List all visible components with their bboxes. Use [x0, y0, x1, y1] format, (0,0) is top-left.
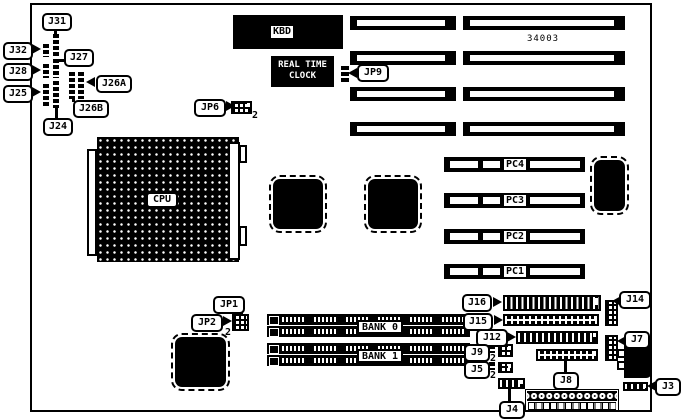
- label-j27: J27: [64, 49, 94, 67]
- j5-pin2-marker: 2: [490, 371, 496, 381]
- kbd-chip-label: KBD: [271, 26, 293, 38]
- jumper-strip-j25: [43, 84, 49, 106]
- connector-j16: [503, 295, 601, 311]
- qfp-chip-2: [368, 179, 418, 229]
- callout-tail-jp9: [348, 68, 357, 78]
- jp2-pin2-marker: 2: [225, 328, 231, 338]
- pc1-slot: PC1: [444, 264, 585, 279]
- pc2-slot-strip1: [450, 233, 478, 240]
- pc4-slot-strip1: [450, 161, 478, 168]
- connector-j8: [536, 349, 598, 361]
- label-j32: J32: [3, 42, 33, 60]
- pc4-slot-strip2: [483, 161, 500, 168]
- bank0-label: BANK 0: [357, 320, 403, 334]
- jumper-strip-j26b: [69, 72, 75, 99]
- jumper-strip-j28: [43, 64, 49, 78]
- jumper-strip-j32: [43, 44, 49, 57]
- callout-tail-j15: [494, 315, 503, 325]
- bank1-label: BANK 1: [357, 349, 403, 363]
- jp6-pin2-marker: 2: [252, 111, 258, 121]
- label-j24: J24: [43, 118, 73, 136]
- qfp-chip-3: [594, 160, 625, 211]
- isa-slot-3-long: [463, 87, 625, 101]
- real-time-clock-chip: REAL TIME CLOCK: [271, 56, 334, 87]
- label-jp9: JP9: [357, 64, 389, 82]
- isa-slot-3-short: [350, 87, 456, 101]
- j16-pin1-notch: [593, 298, 598, 305]
- label-j31: J31: [42, 13, 72, 31]
- isa-slot-1-long: [463, 16, 625, 30]
- cpu-socket-left-bar: [87, 149, 97, 256]
- keyboard-connector-tab-bottom: [617, 361, 626, 370]
- label-j7: J7: [624, 331, 650, 349]
- callout-tail-j25: [32, 87, 41, 97]
- label-j25: J25: [3, 85, 33, 103]
- isa-slot-2-short: [350, 51, 456, 65]
- pc4-slot-strip3: [530, 161, 580, 168]
- jumper-strip-j31: [53, 34, 59, 57]
- label-j28: J28: [3, 63, 33, 81]
- keyboard-connector-tab-top: [617, 349, 626, 358]
- isa-slot-1-short: [350, 16, 456, 30]
- callout-tail-j12: [507, 332, 516, 342]
- isa-slot-4-short: [350, 122, 456, 136]
- callout-tail-j26a: [86, 77, 95, 87]
- connector-j15: [503, 314, 599, 326]
- label-j16: J16: [462, 294, 492, 312]
- board-part-number: 34003: [517, 34, 569, 44]
- pc1-slot-label: PC1: [503, 265, 527, 278]
- connector-j3: [623, 382, 648, 391]
- callout-tail-j16: [493, 297, 502, 307]
- pc3-slot-strip2: [483, 197, 500, 204]
- j9-pin2-marker: 2: [490, 354, 496, 364]
- isa-slot-4-long: [463, 122, 625, 136]
- label-j14: J14: [619, 291, 651, 309]
- qfp-chip-4: [175, 337, 226, 387]
- pc4-slot-label: PC4: [503, 158, 527, 171]
- callout-tail-jp6: [226, 101, 235, 111]
- isa-slot-2-long: [463, 51, 625, 65]
- pc3-slot-strip1: [450, 197, 478, 204]
- rtc-label-line2: CLOCK: [271, 71, 334, 82]
- pc2-slot: PC2: [444, 229, 585, 244]
- connector-block-j5: [498, 362, 513, 373]
- pc1-slot-strip2: [483, 268, 500, 275]
- label-j8: J8: [553, 372, 579, 390]
- pc1-slot-strip3: [530, 268, 580, 275]
- jumper-strip-j24: [53, 81, 59, 108]
- rtc-label-line1: REAL TIME: [271, 60, 334, 71]
- cpu-socket-tab-bottom: [239, 226, 247, 246]
- callout-tail-j28: [32, 65, 41, 75]
- pc3-slot: PC3: [444, 193, 585, 208]
- label-jp2: JP2: [191, 314, 223, 332]
- label-j4: J4: [499, 401, 525, 419]
- kbd-chip: KBD: [233, 15, 343, 49]
- power-connector: [525, 389, 619, 411]
- connector-j12: [516, 331, 598, 344]
- callout-tail-j4: [508, 388, 511, 402]
- connector-j4: [498, 378, 525, 389]
- pc2-slot-label: PC2: [503, 230, 527, 243]
- label-j3: J3: [655, 378, 681, 396]
- cpu-label: CPU: [146, 192, 178, 208]
- pc2-slot-strip2: [483, 233, 500, 240]
- pc1-slot-strip1: [450, 268, 478, 275]
- qfp-chip-1: [273, 179, 323, 229]
- label-j9: J9: [464, 344, 490, 362]
- pc3-slot-label: PC3: [503, 194, 527, 207]
- jumper-block-jp1-jp2: [232, 314, 249, 331]
- pc4-slot: PC4: [444, 157, 585, 172]
- label-jp6: JP6: [194, 99, 226, 117]
- motherboard-diagram: J31 J32 J27 J28 J26A J25 J26B J24 KBD RE…: [0, 0, 683, 420]
- jumper-strip-j26a: [78, 72, 84, 99]
- callout-tail-jp2: [223, 316, 232, 326]
- pc2-slot-strip3: [530, 233, 580, 240]
- label-j26b: J26B: [73, 100, 109, 118]
- pc3-slot-strip3: [530, 197, 580, 204]
- label-j5: J5: [464, 361, 490, 379]
- label-jp1: JP1: [213, 296, 245, 314]
- label-j26a: J26A: [96, 75, 132, 93]
- callout-tail-j32: [32, 44, 41, 54]
- cpu-socket-tab-top: [239, 145, 247, 163]
